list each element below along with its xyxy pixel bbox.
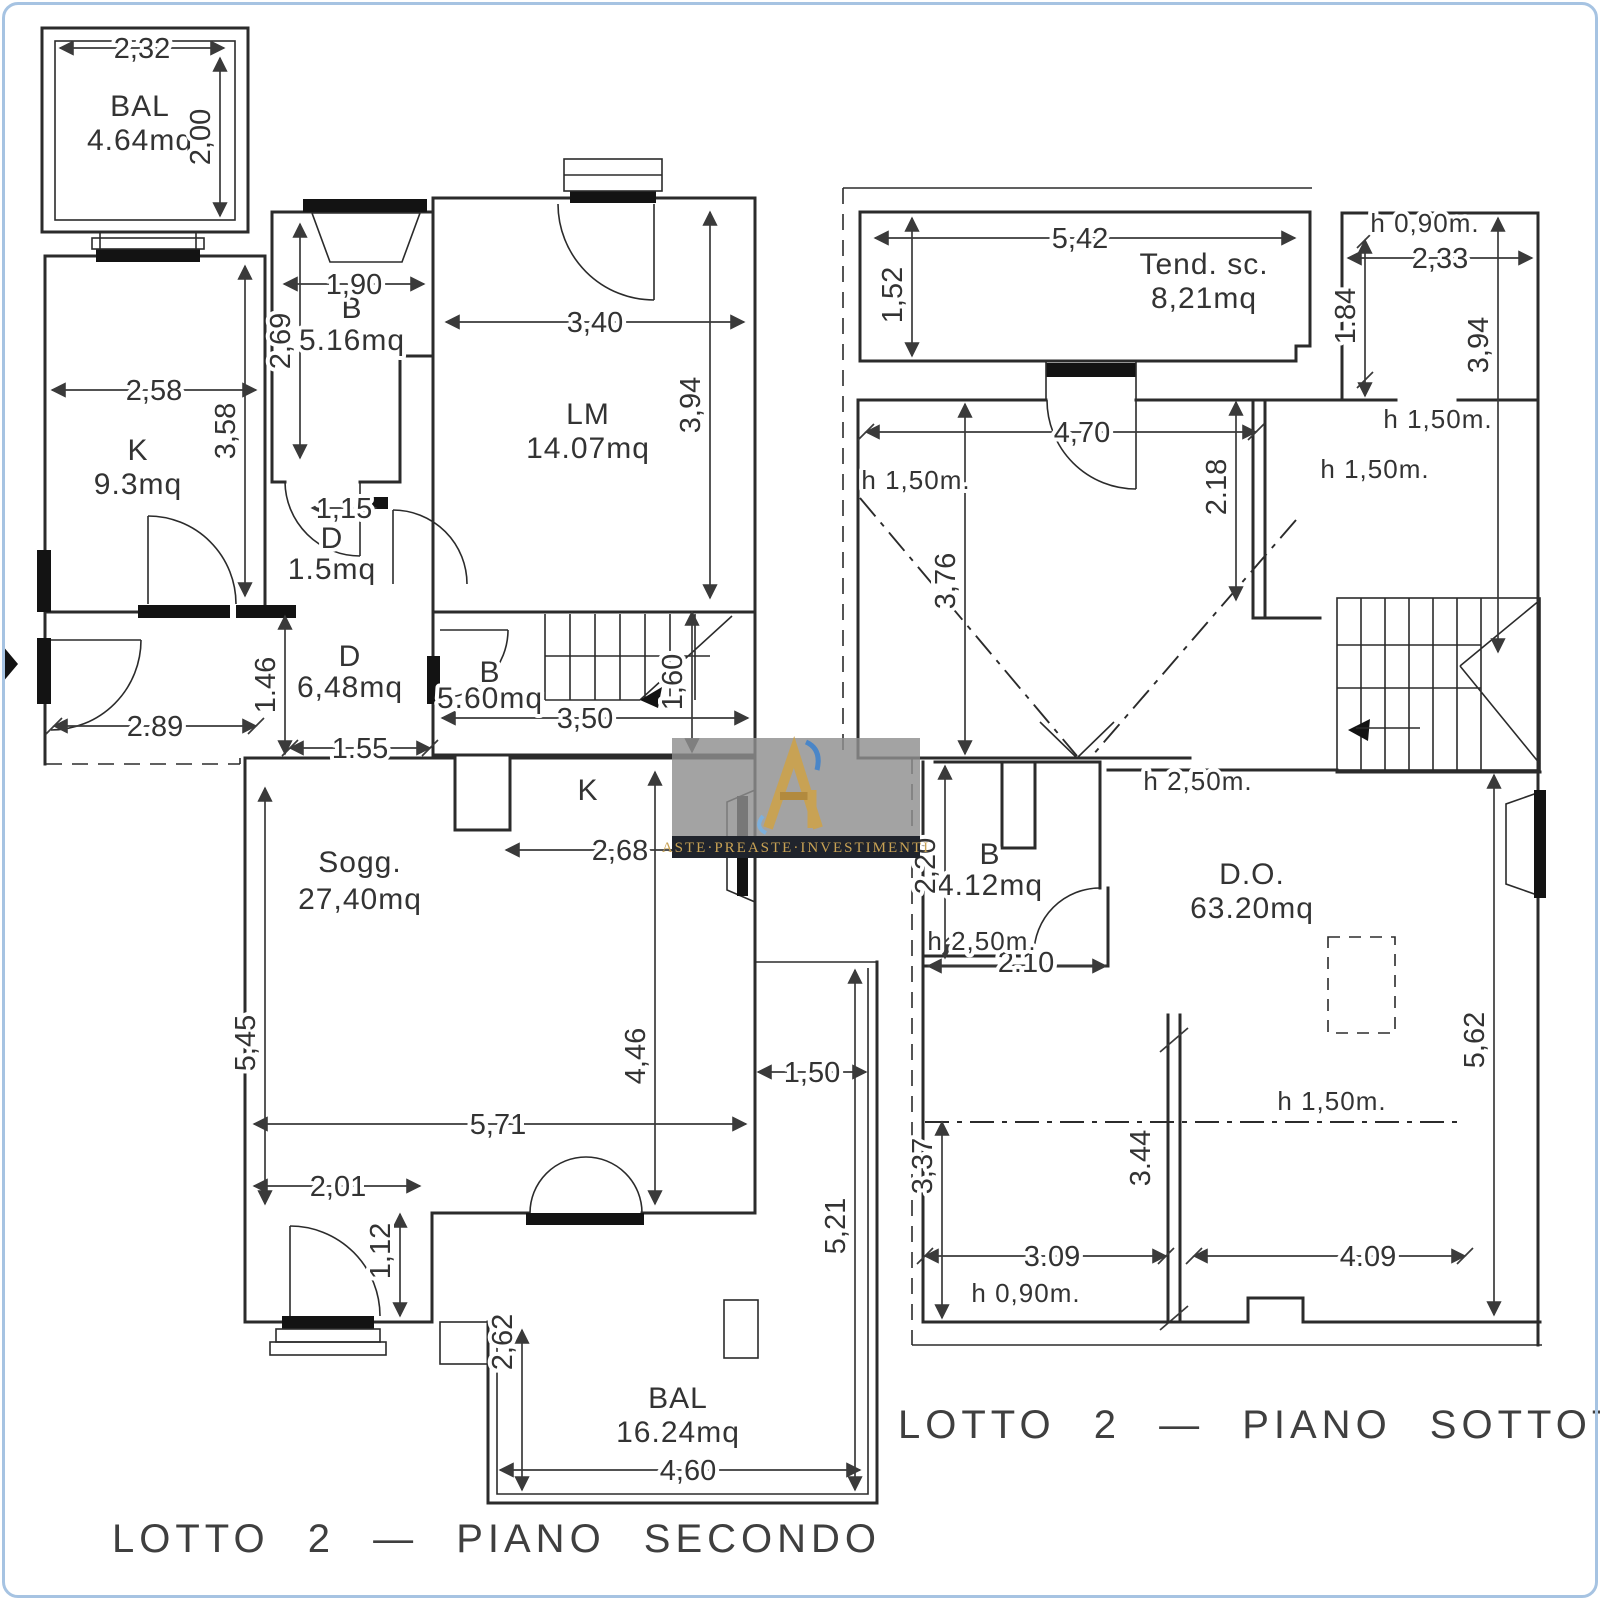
dimension-label: 1.46 [250, 657, 282, 713]
room-area-label: 14.07mq [526, 432, 650, 465]
dimension-label: 1,60 [657, 654, 689, 710]
caption-piano-sottotetto: LOTTO 2 — PIANO SOTTOTETTO [898, 1403, 1600, 1447]
dimension-label: 2,33 [1412, 243, 1468, 275]
dimension-label: 4,70 [1054, 417, 1110, 449]
height-note-label: h 1,50m. [1277, 1086, 1386, 1116]
room-label: K [127, 434, 148, 467]
dimension-label: 3,50 [557, 703, 613, 735]
room-area-label: 5.16mq [299, 324, 405, 357]
room-label: LM [566, 398, 610, 431]
dimension-label: 5,21 [820, 1198, 852, 1254]
dimension-label: 4,60 [660, 1455, 716, 1487]
room-label: B [979, 838, 1000, 871]
dimension-label: 3,37 [907, 1138, 939, 1194]
height-note-label: h 1,50m. [1320, 454, 1429, 484]
dimension-label: 3,94 [675, 377, 707, 433]
dimension-label: 2,01 [310, 1171, 366, 1203]
dimension-label: 3,76 [930, 553, 962, 609]
room-area-label: 4.12mq [937, 869, 1043, 902]
dimension-label: 4,46 [620, 1028, 652, 1084]
dimension-label: 2,68 [592, 835, 648, 867]
height-note-label: h 1,50m. [861, 465, 970, 495]
dimension-label: 2,62 [487, 1314, 519, 1370]
height-note-label: h 1,50m. [1383, 404, 1492, 434]
watermark-text: ASTE·PREASTE·INVESTIMENTI [662, 840, 930, 856]
room-area-label: 63.20mq [1190, 892, 1314, 925]
dimension-label: 3.44 [1125, 1130, 1157, 1186]
dimension-label: 1,12 [365, 1223, 397, 1279]
floor-plan-canvas: BAL4.64mqB5.16mqLM14.07mqK9.3mqD1.5mqD6,… [0, 0, 1600, 1600]
dimension-label: 3,58 [210, 403, 242, 459]
caption-piano-secondo: LOTTO 2 — PIANO SECONDO [112, 1517, 881, 1561]
height-note-label: h 0,90m. [971, 1278, 1080, 1308]
dimension-label: 3.09 [1024, 1241, 1080, 1273]
room-label: Sogg. [318, 846, 401, 879]
dimension-label: 5,71 [470, 1109, 526, 1141]
room-area-label: 1.5mq [288, 553, 376, 586]
room-label: D.O. [1219, 858, 1285, 891]
dimension-label: 2,32 [114, 33, 170, 65]
dimension-label: 1,15 [316, 493, 372, 525]
height-note-label: h 0,90m. [1370, 208, 1479, 238]
dimension-label: 1.55 [332, 733, 388, 765]
dimension-label: 5,62 [1459, 1012, 1491, 1068]
room-area-label: 8,21mq [1151, 282, 1257, 315]
room-label: Tend. sc. [1139, 248, 1268, 281]
room-label: D [321, 522, 344, 555]
room-area-label: 6,48mq [297, 671, 403, 704]
dimension-label: 1,52 [877, 267, 909, 323]
room-area-label: 4.64mq [87, 124, 193, 157]
dimension-label: 2,69 [265, 313, 297, 369]
height-note-label: h 2,50m. [1143, 766, 1252, 796]
room-area-label: 27,40mq [298, 883, 422, 916]
dimension-label: 2.18 [1201, 459, 1233, 515]
dimension-label: 4.09 [1340, 1241, 1396, 1273]
dimension-label: 1,50 [784, 1057, 840, 1089]
room-label: D [339, 640, 362, 673]
room-area-label: 16.24mq [616, 1416, 740, 1449]
dimension-label: 2,00 [185, 109, 217, 165]
dimension-label: 5,45 [230, 1015, 262, 1071]
watermark: ASTE·PREASTE·INVESTIMENTI [662, 738, 930, 858]
height-note-label: h 2,50m. [927, 926, 1036, 956]
room-area-label: 9.3mq [94, 468, 182, 501]
room-area-label: 5.60mq [437, 682, 543, 715]
dimension-label: 1.84 [1330, 288, 1362, 344]
dimension-label: 3,40 [567, 307, 623, 339]
dimension-label: 5,42 [1052, 223, 1108, 255]
dimension-label: 2,58 [126, 375, 182, 407]
room-label: BAL [110, 90, 170, 123]
room-label: K [577, 774, 598, 807]
dimension-label: 1,90 [326, 269, 382, 301]
dimension-label: 2.89 [127, 711, 183, 743]
room-label: BAL [648, 1382, 708, 1415]
dimension-label: 3,94 [1463, 317, 1495, 373]
